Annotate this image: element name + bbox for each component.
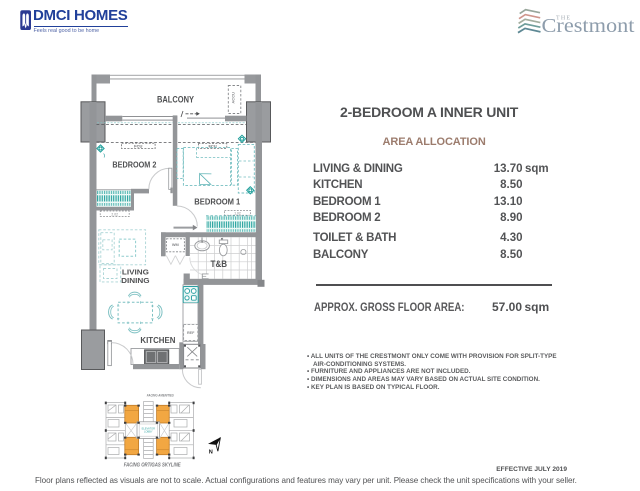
svg-text:DINING: DINING bbox=[121, 276, 150, 285]
svg-text:FCU: FCU bbox=[134, 143, 142, 148]
svg-text:REF: REF bbox=[187, 331, 195, 335]
svg-text:BEDROOM 1: BEDROOM 1 bbox=[194, 196, 240, 206]
svg-text:1.02: 1.02 bbox=[234, 211, 241, 215]
svg-text:Crestmont: Crestmont bbox=[542, 16, 636, 36]
svg-text:BEDROOM 2: BEDROOM 2 bbox=[112, 159, 156, 169]
svg-text:ACCU: ACCU bbox=[231, 92, 236, 104]
svg-text:FACING AMENITIES: FACING AMENITIES bbox=[147, 393, 174, 397]
svg-text:N: N bbox=[209, 449, 213, 455]
svg-text:WM: WM bbox=[172, 242, 179, 247]
svg-text:KITCHEN: KITCHEN bbox=[140, 335, 175, 345]
svg-text:FACING ORTIGAS SKYLINE: FACING ORTIGAS SKYLINE bbox=[124, 463, 182, 469]
svg-text:T&B: T&B bbox=[211, 258, 228, 269]
svg-text:LOBBY: LOBBY bbox=[144, 430, 153, 434]
svg-text:2.02: 2.02 bbox=[111, 213, 118, 217]
svg-text:BALCONY: BALCONY bbox=[157, 94, 194, 104]
